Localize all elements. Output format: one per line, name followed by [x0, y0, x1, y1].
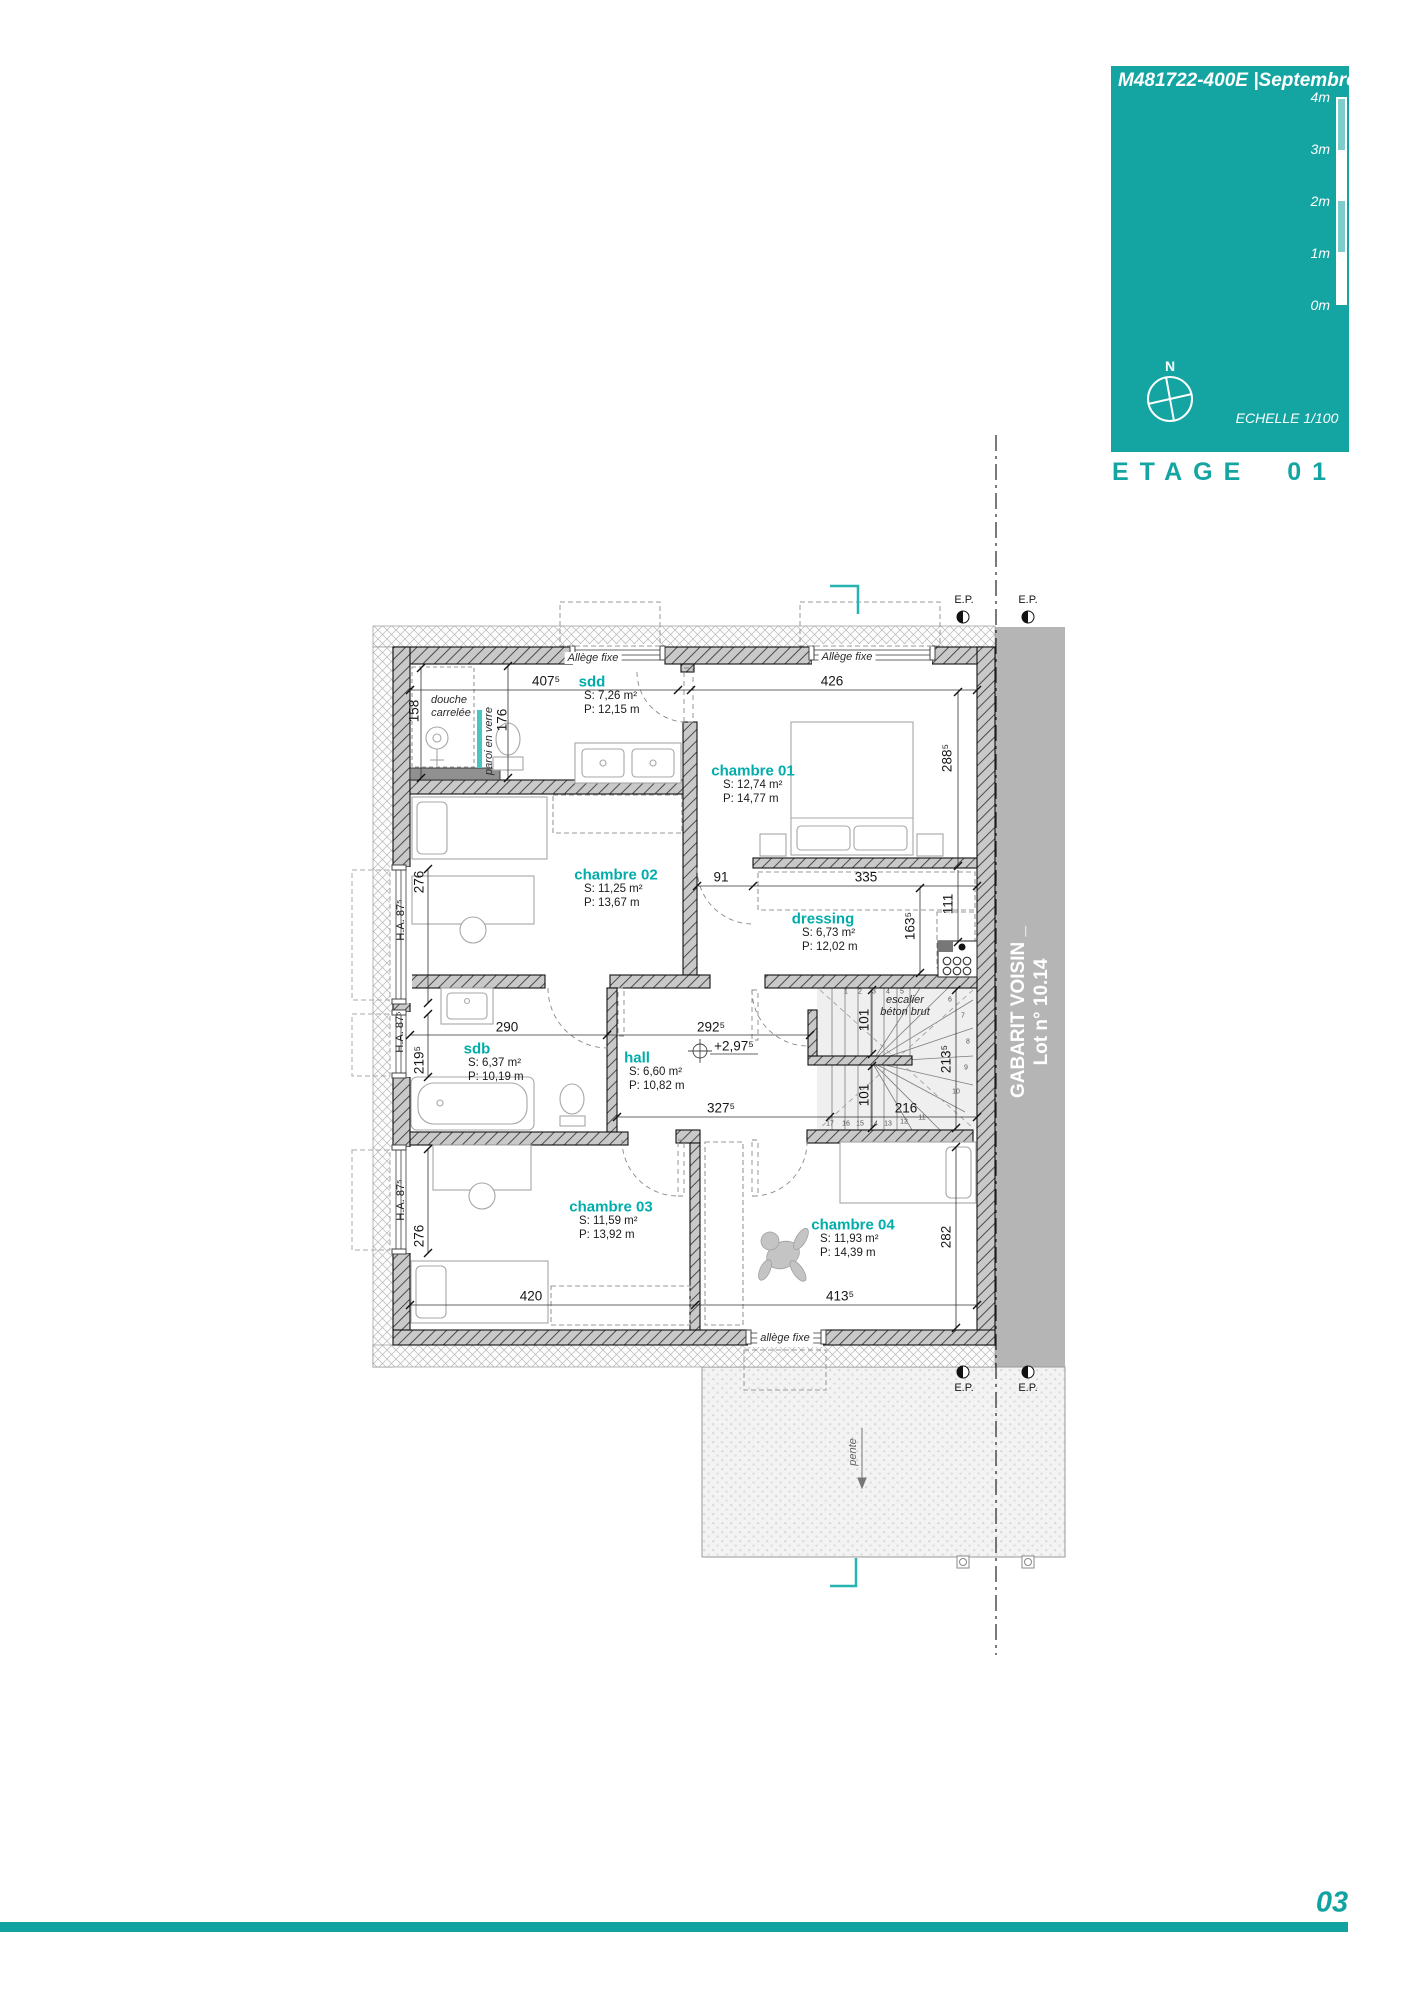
room-stats-dressing: S: 6,73 m² P: 12,02 m [802, 927, 858, 954]
room-perimeter-hall: P: 10,82 m [629, 1080, 685, 1094]
stair-tread-number: 2 [858, 989, 862, 996]
stair-tread-number: 16 [842, 1121, 850, 1128]
room-label-ch01: chambre 01 [711, 763, 794, 780]
room-label-dressing: dressing [792, 911, 855, 928]
stair-tread-number: 9 [964, 1065, 968, 1072]
double-sink [575, 743, 681, 783]
stair-tread-number: 10 [952, 1089, 960, 1096]
stair-tread-number: 8 [966, 1039, 970, 1046]
room-stats-sdb: S: 6,37 m² P: 10,19 m [468, 1057, 524, 1084]
stair-tread-number: 11 [918, 1115, 925, 1122]
ep-label-bottom-2: E.P. [1018, 1382, 1037, 1394]
wardrobe-ch02 [553, 795, 682, 833]
stair-tread-number: 6 [948, 997, 952, 1004]
footer-accent-bar [0, 1922, 1348, 1932]
sink-sdb [441, 988, 493, 1024]
room-area-ch02: S: 11,25 m² [584, 883, 643, 897]
dim-ch01-height: 288⁵ [940, 744, 955, 772]
allege-fixe-label-top-left: Allège fixe [565, 652, 622, 664]
dim-ha-sdb: H.A. 87⁵ [394, 1011, 406, 1052]
room-label-sdb: sdb [464, 1041, 491, 1058]
room-stats-ch01: S: 12,74 m² P: 14,77 m [723, 779, 782, 806]
person-figure [756, 1226, 812, 1284]
dim-ch04-height: 282 [939, 1226, 954, 1249]
scale-tick-4m: 4m [1311, 89, 1330, 105]
room-perimeter-dressing: P: 12,02 m [802, 941, 858, 955]
room-area-dressing: S: 6,73 m² [802, 927, 858, 941]
allege-fixe-label-bottom: allège fixe [757, 1332, 813, 1344]
scale-text: ECHELLE 1/100 [1236, 410, 1339, 426]
glass-partition [477, 710, 482, 768]
stair-tread-number: 3 [872, 989, 876, 996]
stair-tread-number: 12 [900, 1119, 908, 1126]
room-label-ch03: chambre 03 [569, 1199, 652, 1216]
desk-ch02 [412, 876, 534, 943]
room-area-sdb: S: 6,37 m² [468, 1057, 524, 1071]
room-area-hall: S: 6,60 m² [629, 1066, 685, 1080]
dim-ch01-width: 426 [821, 674, 844, 689]
stair-tread-number: 4 [886, 989, 890, 996]
dim-door-gap: 91 [713, 870, 728, 885]
wardrobe-ch03 [551, 1286, 690, 1325]
level-marker [688, 1039, 712, 1063]
north-label: N [1165, 358, 1175, 374]
neighbor-line-1: GABARIT VOISIN _ [1007, 926, 1030, 1098]
douche-label-1: douche [431, 694, 467, 706]
room-perimeter-ch03: P: 13,92 m [579, 1229, 638, 1243]
wardrobe-ch04 [705, 1142, 743, 1325]
stair-tread-number: 17 [826, 1121, 834, 1128]
dim-hall-width2: 327⁵ [707, 1101, 735, 1116]
ep-label-top-1: E.P. [954, 594, 973, 606]
dim-dressing-h1: 111 [941, 894, 956, 915]
room-area-ch03: S: 11,59 m² [579, 1215, 638, 1229]
dim-stair-up: 101 [857, 1009, 872, 1032]
desk-ch03 [433, 1145, 531, 1209]
dim-win-sdb: 219⁵ [412, 1046, 427, 1074]
escalier-label-1: escalier [886, 994, 924, 1006]
room-label-sdd: sdd [579, 674, 606, 691]
dim-win-ch02: 276 [412, 871, 427, 894]
stair-tread-number: 5 [900, 989, 904, 996]
dim-stair-width: 216 [895, 1101, 918, 1116]
stair-tread-number: 14 [870, 1121, 878, 1128]
scale-tick-2m: 2m [1311, 193, 1330, 209]
terrace [702, 1367, 1065, 1557]
dim-shower: 158 [407, 700, 422, 723]
dim-sdb-width: 290 [496, 1020, 519, 1035]
bed-ch02 [412, 797, 547, 859]
scale-tick-0m: 0m [1311, 297, 1330, 313]
room-stats-ch02: S: 11,25 m² P: 13,67 m [584, 883, 643, 910]
paroi-en-verre-label: paroi en verre [483, 707, 495, 775]
neighbor-line-2: Lot n° 10.14 [1030, 926, 1053, 1098]
toilet-sdb [560, 1084, 585, 1126]
dim-dressing-width: 335 [855, 870, 878, 885]
bed-ch01 [760, 722, 943, 856]
room-stats-ch03: S: 11,59 m² P: 13,92 m [579, 1215, 638, 1242]
dim-dressing-h2: 163⁵ [903, 912, 918, 940]
north-compass-icon [1148, 377, 1192, 421]
dim-stair-down: 101 [857, 1084, 872, 1107]
stair-tread-number: 1 [844, 989, 848, 996]
room-label-hall: hall [624, 1050, 650, 1067]
room-stats-sdd: S: 7,26 m² P: 12,15 m [584, 690, 640, 717]
dim-sdd-width: 407⁵ [532, 674, 560, 689]
room-label-ch02: chambre 02 [574, 867, 657, 884]
radiator-box [938, 941, 977, 977]
ep-label-top-2: E.P. [1018, 594, 1037, 606]
room-label-ch04: chambre 04 [811, 1217, 894, 1234]
dim-sdd-depth: 176 [495, 709, 510, 732]
escalier-label-2: béton brut [880, 1006, 930, 1018]
room-perimeter-sdb: P: 10,19 m [468, 1071, 524, 1085]
room-perimeter-ch01: P: 14,77 m [723, 793, 782, 807]
pente-label: pente [847, 1438, 859, 1466]
dim-hall-width: 292⁵ [697, 1020, 725, 1035]
bathtub [411, 1077, 534, 1130]
room-area-ch04: S: 11,93 m² [820, 1233, 879, 1247]
stair-tread-number: 15 [856, 1121, 864, 1128]
dim-win-ch03: 276 [412, 1225, 427, 1248]
allege-fixe-label-top-right: Allège fixe [819, 651, 876, 663]
page-number: 03 [1316, 1887, 1348, 1920]
stair-tread-number: 13 [884, 1121, 892, 1128]
room-stats-hall: S: 6,60 m² P: 10,82 m [629, 1066, 685, 1093]
dim-ch04-width: 413⁵ [826, 1289, 854, 1304]
stair-tread-number: 7 [961, 1013, 965, 1020]
dim-ha-ch03: H.A. 87⁵ [395, 1179, 407, 1220]
floor-plan-drawing [0, 0, 1414, 2000]
floor-title: ETAGE 01 [1112, 458, 1337, 487]
dim-stair-turn: 213⁵ [939, 1045, 954, 1073]
scale-bar [1336, 97, 1347, 305]
room-area-ch01: S: 12,74 m² [723, 779, 782, 793]
scale-tick-1m: 1m [1311, 245, 1330, 261]
room-perimeter-ch04: P: 14,39 m [820, 1247, 879, 1261]
douche-label-2: carrelée [431, 707, 471, 719]
neighbor-band-label: GABARIT VOISIN _ Lot n° 10.14 [1007, 926, 1053, 1098]
page: M481722-400E |Septembre 2024 [0, 0, 1414, 2000]
dim-ha-ch02: H.A. 87⁵ [395, 899, 407, 940]
dim-ch03-width: 420 [520, 1289, 543, 1304]
scale-tick-3m: 3m [1311, 141, 1330, 157]
room-perimeter-sdd: P: 12,15 m [584, 704, 640, 718]
level-value: +2,97⁵ [714, 1039, 754, 1054]
room-perimeter-ch02: P: 13,67 m [584, 897, 643, 911]
room-stats-ch04: S: 11,93 m² P: 14,39 m [820, 1233, 879, 1260]
room-area-sdd: S: 7,26 m² [584, 690, 640, 704]
ep-label-bottom-1: E.P. [954, 1382, 973, 1394]
